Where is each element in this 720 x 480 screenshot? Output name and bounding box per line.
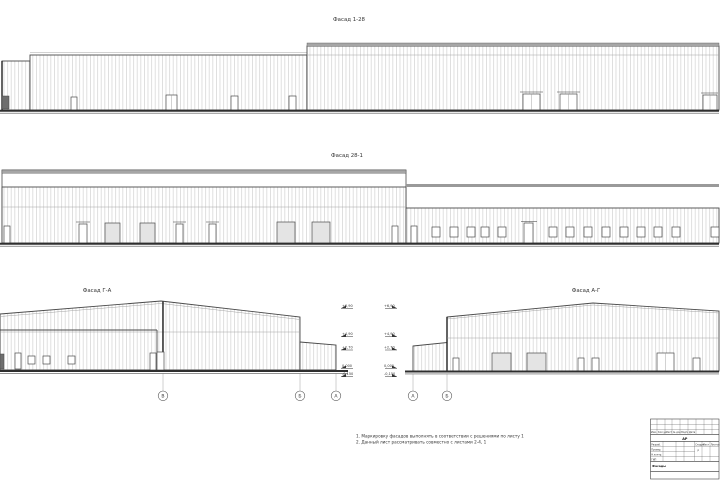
elevation-bottom-right: Фасад А-Г А Б +6,90 +4,90 bbox=[384, 288, 719, 401]
lean-to-wall bbox=[300, 342, 336, 370]
door bbox=[71, 97, 77, 110]
door bbox=[231, 96, 238, 110]
door bbox=[392, 226, 398, 243]
level-value: +2,70 bbox=[342, 346, 353, 350]
door bbox=[693, 358, 700, 371]
window bbox=[654, 227, 662, 237]
level-value: 0,000 bbox=[342, 364, 352, 368]
level-value: +2,70 bbox=[384, 346, 395, 350]
elevation-title: Фасад А-Г bbox=[572, 288, 601, 294]
wall-tall-section bbox=[307, 46, 719, 110]
stamp-stage-value: Р bbox=[698, 450, 700, 453]
axis-bubble-group: А Б bbox=[408, 374, 452, 401]
stamp-role-nkontr: Н.контр. bbox=[651, 454, 662, 457]
stamp-header-podp: Подп. bbox=[681, 431, 688, 434]
door bbox=[4, 226, 10, 243]
level-value: -0,150 bbox=[342, 372, 353, 376]
general-notes: 1. Маркировку фасадов выполнять в соотве… bbox=[356, 434, 524, 445]
stamp-role-gip: ГИП bbox=[651, 459, 656, 462]
door bbox=[157, 352, 164, 370]
door bbox=[15, 353, 21, 369]
level-value: +6,90 bbox=[342, 304, 353, 308]
elevation-bottom-left: Фасад Г-А В Б А +6,9 bbox=[0, 288, 353, 401]
axis-bubble-group: В Б А bbox=[158, 373, 341, 400]
window bbox=[711, 227, 719, 237]
rollup-door bbox=[140, 223, 155, 243]
facade-drawing: Фасад 1-28 Фасад 28-1 bbox=[0, 0, 720, 480]
stamp-doc-code: АР bbox=[682, 437, 688, 441]
window bbox=[432, 227, 440, 237]
elevation-top: Фасад 1-28 bbox=[0, 17, 719, 113]
stamp-header-izm: Изм. bbox=[651, 431, 657, 434]
door bbox=[592, 358, 599, 371]
window bbox=[602, 227, 610, 237]
level-markers-right: +6,90 +4,90 +2,70 0,000 -0,150 bbox=[384, 304, 397, 377]
note-line-1: 1. Маркировку фасадов выполнять в соотве… bbox=[356, 434, 524, 439]
elevation-title: Фасад 1-28 bbox=[333, 17, 365, 23]
stamp-header-data: Дата bbox=[689, 431, 696, 434]
note-line-2: 2. Данный лист рассматривать совместно с… bbox=[356, 440, 487, 445]
axis-label: В bbox=[161, 394, 164, 400]
rollup-door bbox=[527, 353, 546, 371]
level-value: +4,90 bbox=[384, 332, 395, 336]
window bbox=[28, 356, 35, 364]
window bbox=[43, 356, 50, 364]
stamp-doc-title: Фасады bbox=[652, 464, 666, 468]
wall-low-section bbox=[406, 208, 719, 243]
dark-opening bbox=[2, 96, 9, 109]
door bbox=[150, 353, 156, 370]
door bbox=[79, 224, 87, 243]
door bbox=[411, 226, 417, 243]
window bbox=[481, 227, 489, 237]
window bbox=[620, 227, 628, 237]
elevation-title: Фасад 28-1 bbox=[331, 153, 363, 159]
axis-label: Б bbox=[445, 394, 448, 400]
window bbox=[68, 356, 75, 364]
window bbox=[467, 227, 475, 237]
dark-opening bbox=[0, 354, 4, 369]
window bbox=[584, 227, 592, 237]
elevation-middle: Фасад 28-1 bbox=[0, 153, 719, 246]
rollup-door bbox=[277, 222, 295, 243]
elevation-title: Фасад Г-А bbox=[83, 288, 112, 294]
stamp-header-list: Лист bbox=[666, 431, 673, 434]
lean-to-wall bbox=[413, 343, 447, 372]
door bbox=[524, 223, 533, 243]
wall-siding bbox=[2, 187, 406, 243]
door bbox=[453, 358, 459, 371]
rollup-door bbox=[105, 223, 120, 243]
stamp-role-prover: Провер. bbox=[651, 449, 661, 452]
window bbox=[450, 227, 458, 237]
stamp-role-razrab: Разраб. bbox=[651, 444, 661, 447]
window bbox=[672, 227, 680, 237]
title-block: Изм. Кол.уч. Лист № док. Подп. Дата АР Р… bbox=[651, 419, 720, 479]
rollup-door bbox=[312, 222, 330, 243]
level-value: +6,90 bbox=[384, 304, 395, 308]
level-value: +4,90 bbox=[342, 332, 353, 336]
parapet-cap bbox=[307, 43, 719, 46]
window bbox=[549, 227, 557, 237]
door bbox=[578, 358, 584, 371]
window bbox=[637, 227, 645, 237]
stamp-list-header: Лист bbox=[703, 444, 710, 447]
axis-label: Б bbox=[298, 394, 301, 400]
rollup-door bbox=[492, 353, 511, 371]
window bbox=[566, 227, 574, 237]
level-value: 0,000 bbox=[384, 364, 394, 368]
window bbox=[498, 227, 506, 237]
drawing-sheet: Фасад 1-28 Фасад 28-1 bbox=[0, 0, 720, 480]
stamp-listov-header: Листов bbox=[711, 444, 720, 447]
parapet-cap bbox=[2, 170, 406, 173]
door bbox=[289, 96, 296, 110]
level-value: -0,150 bbox=[384, 372, 395, 376]
door bbox=[209, 224, 216, 243]
level-markers-left: +6,90 +4,90 +2,70 0,000 -0,150 bbox=[341, 304, 353, 377]
door bbox=[176, 224, 183, 243]
